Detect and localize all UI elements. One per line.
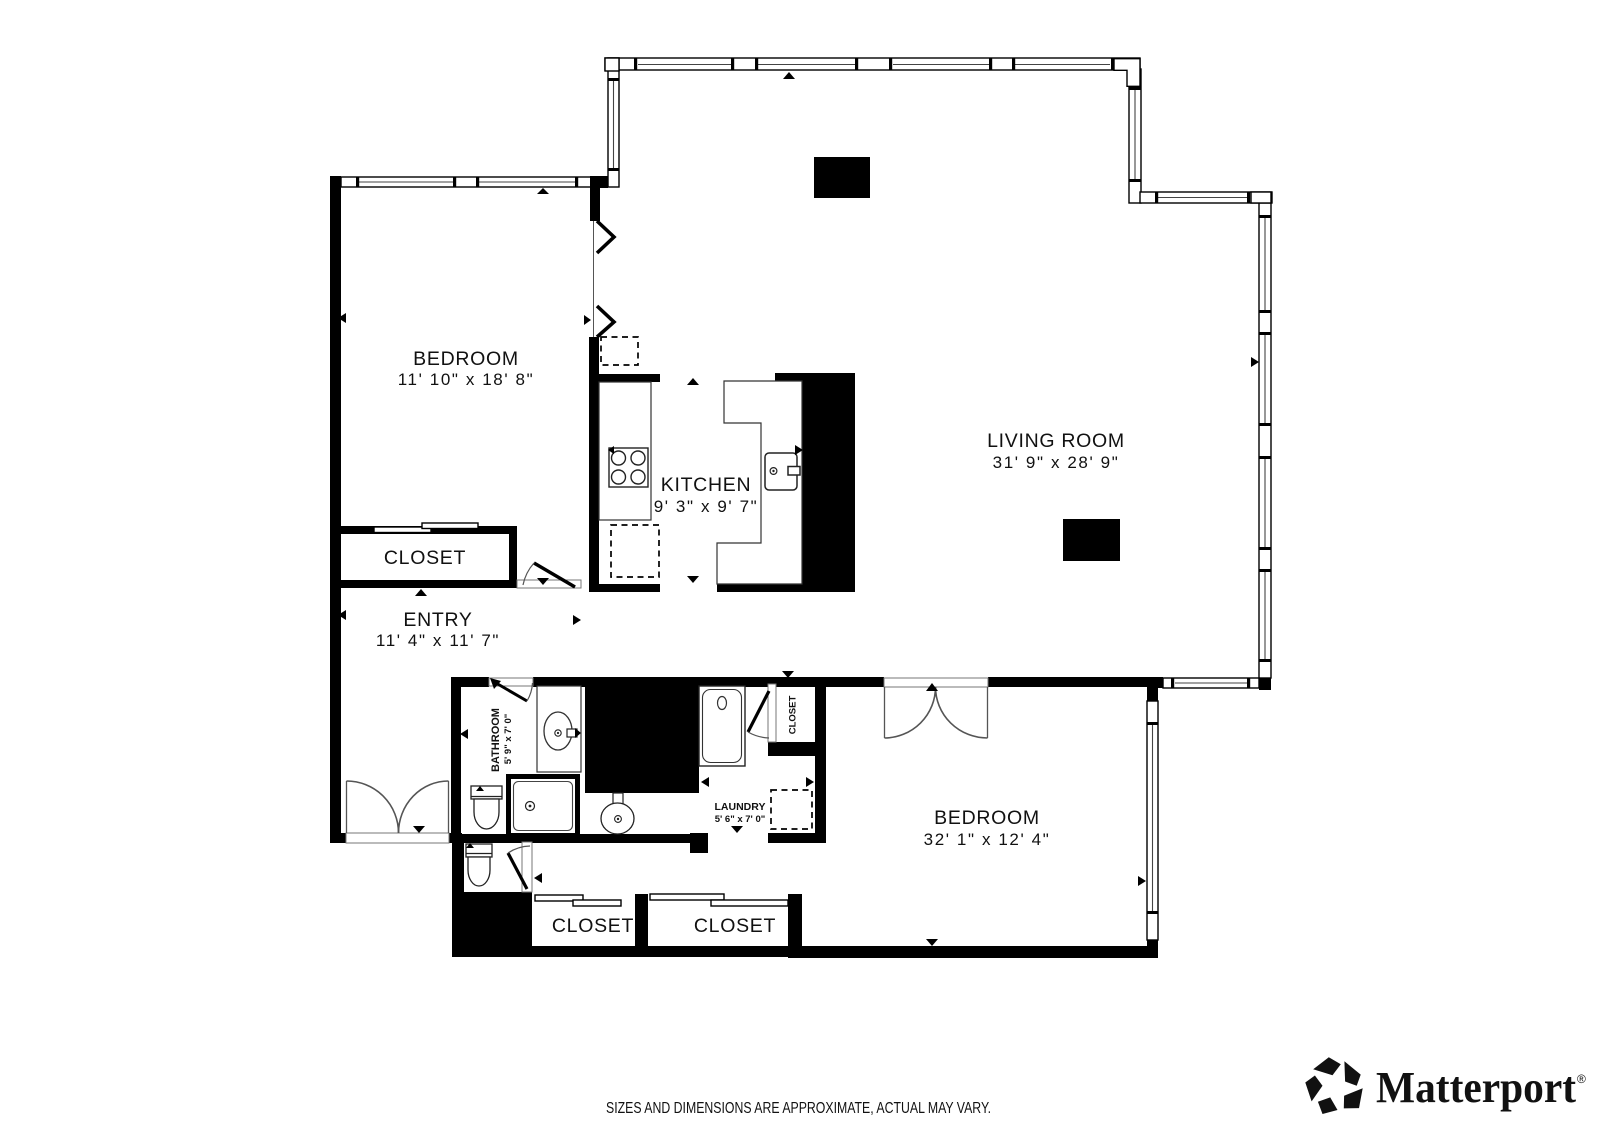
- svg-text:BATHROOM: BATHROOM: [490, 708, 502, 772]
- svg-text:5' 6" x 7' 0": 5' 6" x 7' 0": [715, 814, 766, 825]
- svg-text:BEDROOM: BEDROOM: [413, 348, 519, 370]
- svg-text:®: ®: [1577, 1072, 1586, 1086]
- svg-text:Matterport: Matterport: [1376, 1063, 1576, 1112]
- svg-text:CLOSET: CLOSET: [384, 547, 466, 569]
- svg-text:31' 9" x 28' 9": 31' 9" x 28' 9": [993, 453, 1120, 472]
- svg-text:ENTRY: ENTRY: [403, 609, 472, 631]
- svg-text:LIVING ROOM: LIVING ROOM: [987, 430, 1125, 452]
- svg-text:LAUNDRY: LAUNDRY: [715, 801, 766, 813]
- svg-text:CLOSET: CLOSET: [552, 915, 634, 937]
- svg-text:11' 4" x 11' 7": 11' 4" x 11' 7": [376, 631, 500, 650]
- svg-text:11' 10" x 18' 8": 11' 10" x 18' 8": [398, 370, 534, 389]
- svg-text:CLOSET: CLOSET: [788, 696, 799, 735]
- svg-text:32' 1" x 12' 4": 32' 1" x 12' 4": [924, 830, 1051, 849]
- svg-text:SIZES AND DIMENSIONS ARE APPRO: SIZES AND DIMENSIONS ARE APPROXIMATE, AC…: [606, 1100, 991, 1117]
- svg-text:BEDROOM: BEDROOM: [934, 807, 1040, 829]
- svg-text:5' 9" x 7' 0": 5' 9" x 7' 0": [503, 714, 514, 765]
- svg-text:9' 3" x 9' 7": 9' 3" x 9' 7": [654, 497, 759, 516]
- svg-text:KITCHEN: KITCHEN: [661, 474, 752, 496]
- svg-text:CLOSET: CLOSET: [694, 915, 776, 937]
